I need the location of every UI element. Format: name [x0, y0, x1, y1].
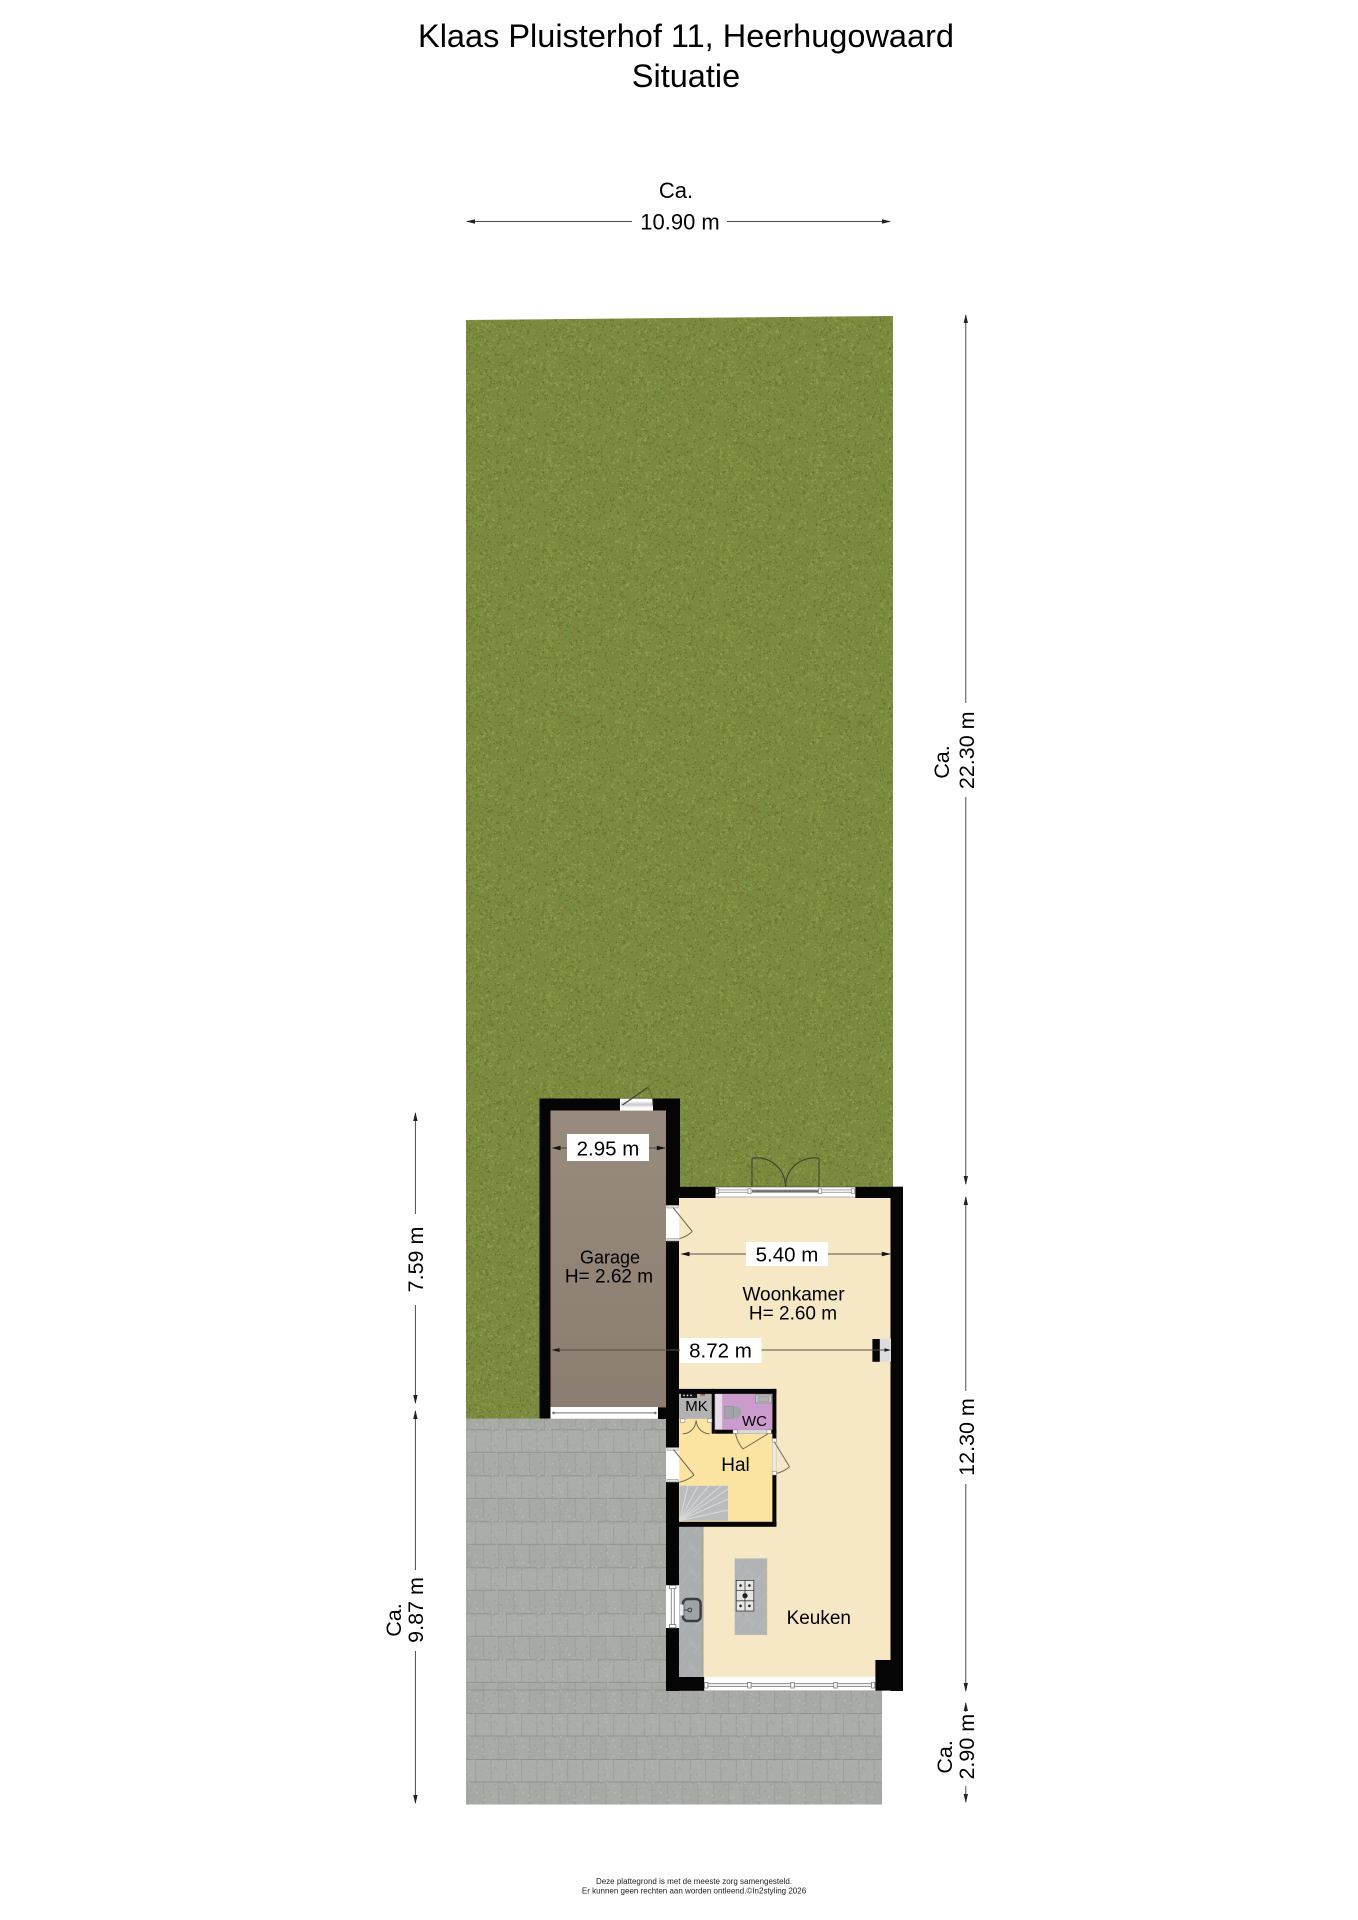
svg-text:8.72 m: 8.72 m [689, 1340, 752, 1363]
svg-text:5.40 m: 5.40 m [756, 1244, 819, 1267]
svg-text:Ca.: Ca. [659, 178, 693, 203]
svg-text:22.30 m: 22.30 m [955, 711, 979, 789]
svg-text:2.90 m: 2.90 m [955, 1714, 979, 1780]
svg-text:Ca.: Ca. [933, 1740, 957, 1773]
svg-text:Ca.: Ca. [382, 1603, 406, 1636]
svg-text:WC: WC [742, 1413, 767, 1430]
svg-text:Hal: Hal [721, 1455, 750, 1476]
svg-text:Ca.: Ca. [930, 745, 954, 778]
svg-text:7.59 m: 7.59 m [404, 1227, 428, 1293]
svg-text:Garage: Garage [580, 1248, 640, 1268]
svg-text:H= 2.60 m: H= 2.60 m [749, 1304, 837, 1325]
svg-text:MK: MK [685, 1398, 708, 1415]
svg-text:2.95 m: 2.95 m [577, 1138, 640, 1161]
svg-text:Klaas Pluisterhof 11, Heerhugo: Klaas Pluisterhof 11, Heerhugowaard [418, 18, 954, 54]
svg-text:Er kunnen geen rechten aan wor: Er kunnen geen rechten aan worden ontlee… [582, 1887, 807, 1896]
svg-text:10.90 m: 10.90 m [640, 210, 720, 235]
svg-text:Woonkamer: Woonkamer [742, 1285, 845, 1306]
svg-text:9.87 m: 9.87 m [404, 1577, 428, 1643]
svg-text:Deze plattegrond is met de mee: Deze plattegrond is met de meeste zorg s… [596, 1877, 792, 1886]
svg-text:Keuken: Keuken [787, 1608, 851, 1629]
svg-text:12.30 m: 12.30 m [955, 1398, 979, 1476]
svg-text:H= 2.62 m: H= 2.62 m [565, 1267, 653, 1288]
svg-text:Situatie: Situatie [632, 58, 740, 94]
